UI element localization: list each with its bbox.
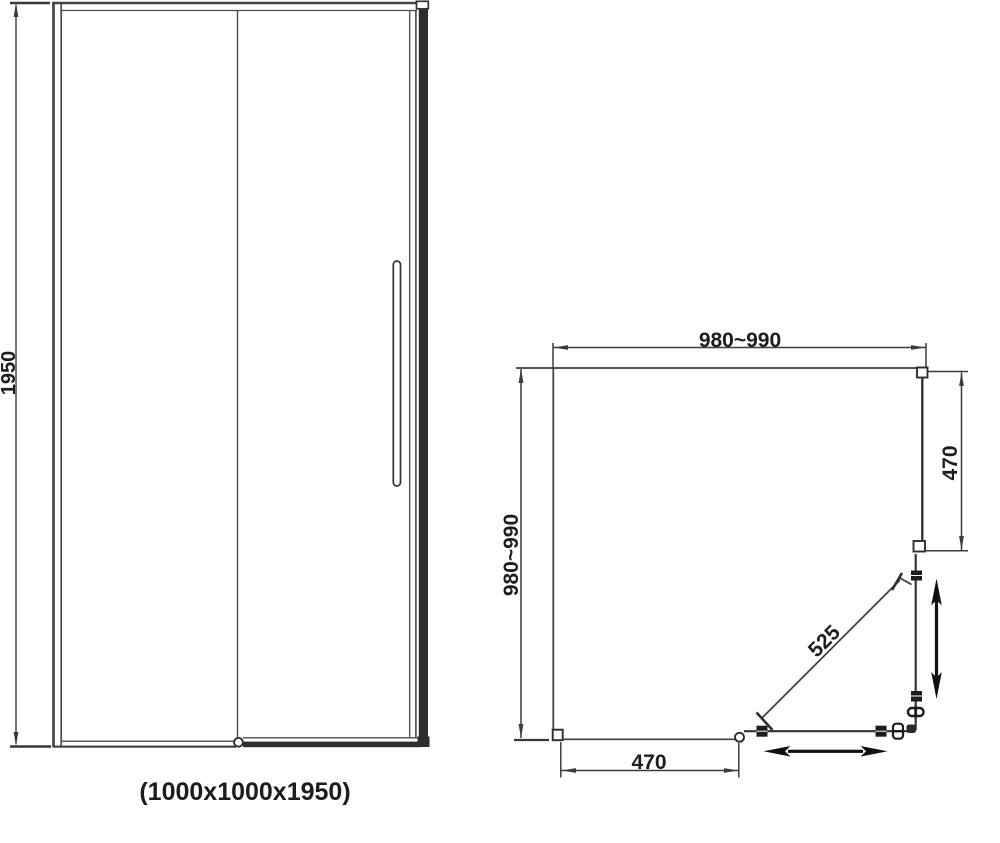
svg-text:470: 470 — [631, 751, 666, 774]
svg-text:1950: 1950 — [0, 351, 20, 396]
svg-text:980~990: 980~990 — [500, 514, 523, 596]
svg-text:(1000x1000x1950): (1000x1000x1950) — [139, 778, 350, 806]
svg-text:980~990: 980~990 — [699, 329, 781, 352]
svg-text:470: 470 — [939, 445, 962, 480]
